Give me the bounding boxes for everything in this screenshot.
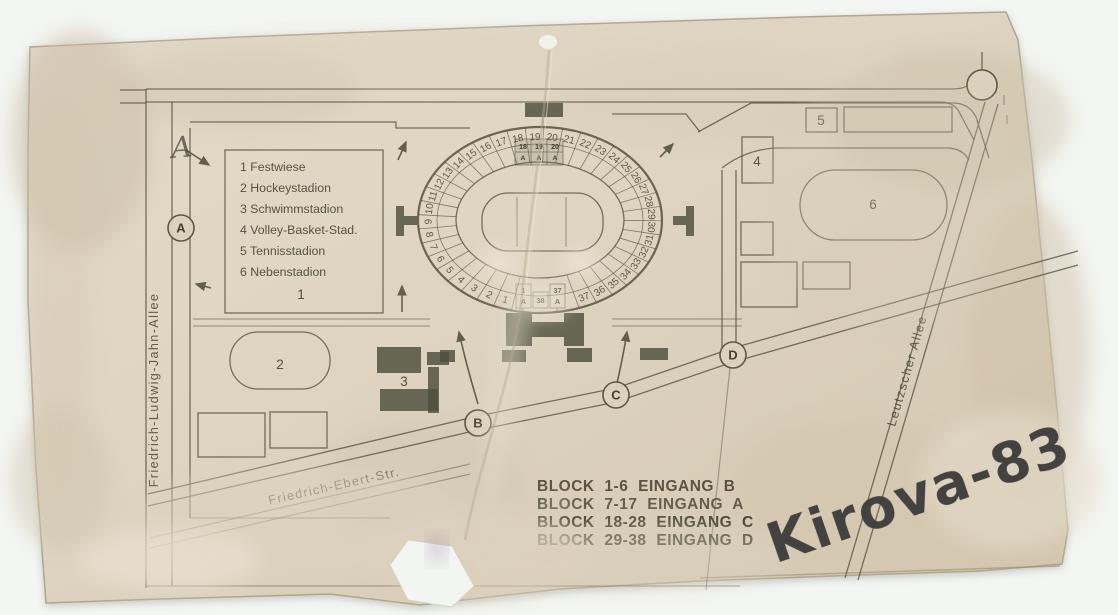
stadium-block-number: 29 (645, 208, 657, 220)
legend-item: 2 Hockeystadion (240, 181, 331, 195)
entrance-note-line: BLOCK 7-17 EINGANG A (537, 496, 744, 513)
area-label-festwiese: 1 (297, 287, 305, 302)
entrance-note-line: BLOCK 1-6 EINGANG B (537, 478, 735, 495)
kiosk (440, 350, 455, 362)
stadium-block-number: 9 (423, 218, 434, 224)
kiosk (640, 348, 668, 360)
area-label-hockeystadion: 2 (276, 357, 284, 372)
scanned-stadium-plan: 1 Festwiese 2 Hockeystadion 3 Schwimmsta… (0, 0, 1118, 615)
stadium-block-number: 30 (645, 221, 657, 233)
area-label-volley-basket: 4 (753, 154, 761, 169)
svg-text:20: 20 (551, 144, 559, 151)
legend-item: 1 Festwiese (240, 160, 306, 174)
edge-nick (539, 35, 557, 49)
legend-item: 3 Schwimmstadion (240, 202, 343, 216)
legend-item: 4 Volley-Basket-Stad. (240, 223, 358, 237)
legend-item: 6 Nebenstadion (240, 265, 326, 279)
gate-letter-b: B (473, 416, 482, 431)
svg-text:18: 18 (519, 144, 527, 151)
gate-letter-d: D (728, 348, 737, 363)
kiosk (567, 348, 592, 362)
ink-stain (430, 538, 444, 560)
gate-letter-a: A (176, 221, 186, 236)
legend-item: 5 Tennisstadion (240, 244, 325, 258)
stadium-block-number: 10 (424, 202, 436, 215)
area-label-schwimmstadion: 3 (400, 374, 408, 389)
street-label-jahn-allee: Friedrich-Ludwig-Jahn-Allee (147, 293, 161, 488)
gate-letter-c: C (611, 388, 621, 403)
svg-text:A: A (521, 155, 526, 162)
svg-text:A: A (553, 155, 558, 162)
